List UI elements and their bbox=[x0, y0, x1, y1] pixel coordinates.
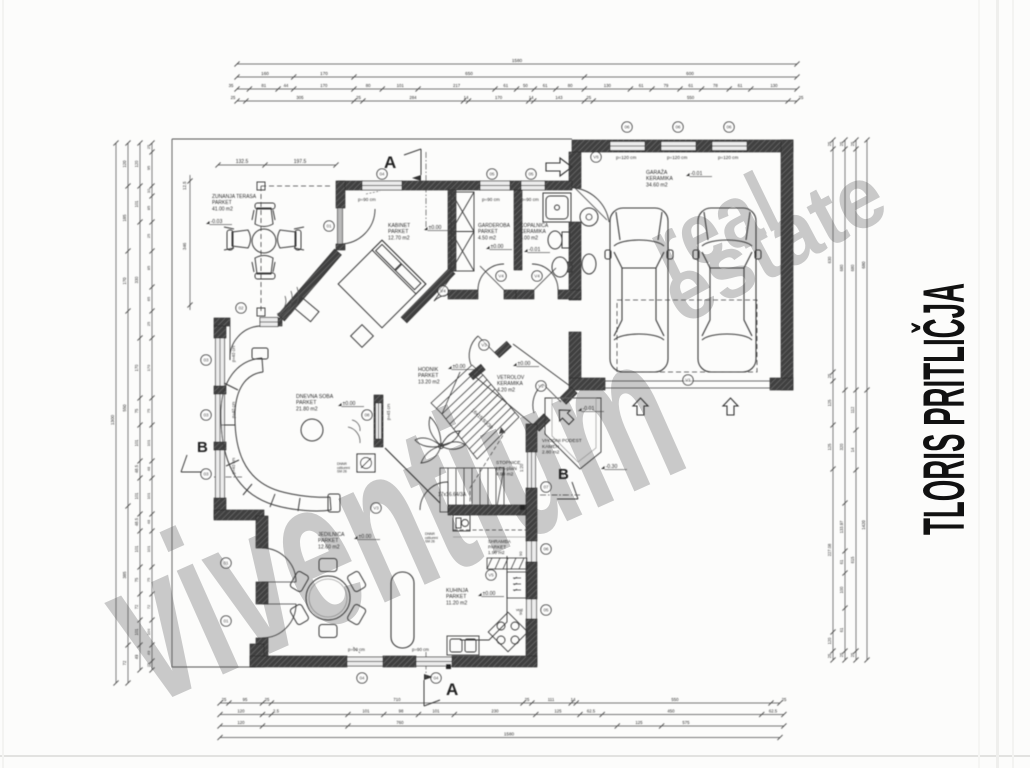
svg-text:DNEVNA SOBA: DNEVNA SOBA bbox=[296, 394, 334, 400]
svg-text:p=120 cm: p=120 cm bbox=[616, 155, 636, 160]
svg-text:VHODNI PODEST: VHODNI PODEST bbox=[542, 438, 582, 444]
svg-text:120: 120 bbox=[237, 709, 245, 714]
svg-text:1.90 m2: 1.90 m2 bbox=[488, 550, 505, 555]
svg-text:04: 04 bbox=[379, 172, 385, 177]
svg-text:550: 550 bbox=[687, 95, 695, 100]
svg-text:680: 680 bbox=[839, 264, 844, 272]
svg-text:2.80 m2: 2.80 m2 bbox=[542, 450, 560, 456]
svg-text:2.5: 2.5 bbox=[273, 709, 280, 714]
svg-text:B: B bbox=[197, 439, 208, 456]
svg-text:49: 49 bbox=[134, 654, 139, 659]
svg-text:630: 630 bbox=[827, 256, 832, 264]
svg-text:80: 80 bbox=[568, 83, 573, 88]
svg-text:330: 330 bbox=[134, 276, 139, 284]
svg-text:320: 320 bbox=[839, 443, 844, 451]
svg-text:p=120 cm: p=120 cm bbox=[667, 155, 687, 160]
svg-text:101: 101 bbox=[134, 200, 139, 208]
svg-text:112: 112 bbox=[850, 406, 855, 413]
svg-text:02: 02 bbox=[238, 306, 244, 311]
svg-text:PARKET: PARKET bbox=[212, 200, 232, 206]
svg-text:25: 25 bbox=[827, 141, 832, 146]
svg-text:170: 170 bbox=[122, 277, 127, 285]
svg-text:101: 101 bbox=[146, 493, 151, 500]
svg-text:25: 25 bbox=[850, 141, 855, 146]
svg-text:1:20: 1:20 bbox=[519, 463, 524, 472]
svg-text:44: 44 bbox=[284, 83, 289, 88]
svg-text:06: 06 bbox=[543, 547, 549, 552]
svg-text:170: 170 bbox=[320, 83, 328, 88]
svg-text:450: 450 bbox=[667, 709, 675, 714]
svg-text:25: 25 bbox=[146, 145, 151, 149]
svg-text:120: 120 bbox=[237, 720, 245, 725]
svg-text:170: 170 bbox=[320, 71, 328, 76]
svg-text:TLORIS PRITLIČJA: TLORIS PRITLIČJA bbox=[912, 283, 977, 535]
svg-text:125: 125 bbox=[827, 443, 832, 451]
svg-text:170: 170 bbox=[134, 364, 139, 372]
svg-text:217: 217 bbox=[453, 83, 461, 88]
svg-text:KUHINJA: KUHINJA bbox=[446, 588, 469, 594]
svg-text:ZUNANJA TERASA: ZUNANJA TERASA bbox=[212, 194, 257, 200]
svg-text:85: 85 bbox=[146, 206, 151, 210]
svg-text:143: 143 bbox=[555, 95, 563, 100]
svg-text:06: 06 bbox=[726, 125, 732, 130]
svg-text:230: 230 bbox=[491, 709, 499, 714]
svg-text:V5: V5 bbox=[488, 573, 494, 578]
svg-text:48: 48 bbox=[146, 467, 151, 471]
svg-text:120: 120 bbox=[122, 160, 127, 168]
svg-text:13.20 m2: 13.20 m2 bbox=[418, 379, 440, 385]
svg-text:12.70 m2: 12.70 m2 bbox=[388, 235, 410, 241]
svg-text:25: 25 bbox=[839, 141, 844, 146]
svg-text:05: 05 bbox=[489, 172, 495, 177]
svg-text:KAMEN: KAMEN bbox=[542, 444, 560, 450]
svg-text:79: 79 bbox=[664, 83, 669, 88]
svg-text:1300: 1300 bbox=[110, 414, 115, 425]
svg-text:75: 75 bbox=[134, 577, 139, 582]
svg-text:600: 600 bbox=[686, 71, 694, 76]
svg-text:61: 61 bbox=[688, 83, 693, 88]
svg-text:25: 25 bbox=[265, 697, 270, 702]
svg-text:p=90 cm: p=90 cm bbox=[358, 197, 376, 202]
svg-text:95: 95 bbox=[146, 166, 151, 170]
svg-text:72: 72 bbox=[134, 604, 139, 609]
svg-text:p=90 cm: p=90 cm bbox=[348, 647, 365, 652]
svg-text:4.00 m2: 4.00 m2 bbox=[520, 235, 538, 241]
svg-text:197.5: 197.5 bbox=[294, 159, 307, 165]
svg-text:48.5: 48.5 bbox=[134, 517, 139, 526]
svg-text:615: 615 bbox=[850, 556, 855, 564]
svg-text:14: 14 bbox=[850, 447, 855, 452]
svg-text:25: 25 bbox=[782, 697, 787, 702]
svg-text:V4: V4 bbox=[534, 274, 540, 279]
svg-text:41.00 m2: 41.00 m2 bbox=[212, 206, 233, 212]
svg-text:LES-plahi: LES-plahi bbox=[496, 466, 517, 472]
svg-text:550: 550 bbox=[671, 697, 679, 702]
svg-text:101: 101 bbox=[362, 709, 370, 714]
svg-text:101: 101 bbox=[397, 83, 405, 88]
svg-text:48.5: 48.5 bbox=[134, 464, 139, 473]
svg-text:81: 81 bbox=[261, 83, 266, 88]
svg-text:4.50 m2: 4.50 m2 bbox=[478, 235, 496, 241]
svg-text:V3: V3 bbox=[481, 343, 487, 348]
svg-text:06: 06 bbox=[675, 125, 681, 130]
svg-text:85: 85 bbox=[146, 266, 151, 270]
svg-text:1580: 1580 bbox=[512, 58, 523, 63]
svg-text:61: 61 bbox=[503, 83, 508, 88]
svg-text:4.20 m2: 4.20 m2 bbox=[497, 387, 515, 393]
svg-text:101: 101 bbox=[134, 439, 139, 447]
svg-text:48: 48 bbox=[146, 520, 151, 524]
svg-text:75: 75 bbox=[134, 408, 139, 413]
svg-text:72: 72 bbox=[146, 605, 151, 609]
svg-text:72: 72 bbox=[122, 660, 127, 665]
svg-text:p=40 cm: p=40 cm bbox=[231, 457, 236, 474]
svg-text:25: 25 bbox=[827, 373, 832, 378]
svg-text:07: 07 bbox=[543, 485, 549, 490]
svg-text:170: 170 bbox=[146, 364, 151, 371]
svg-text:61: 61 bbox=[839, 627, 844, 632]
svg-text:1580: 1580 bbox=[504, 732, 515, 737]
svg-text:PARKET: PARKET bbox=[318, 538, 339, 544]
svg-text:575: 575 bbox=[682, 720, 690, 725]
svg-text:120: 120 bbox=[134, 160, 139, 168]
svg-text:75: 75 bbox=[146, 578, 151, 582]
svg-text:GARDEROBA: GARDEROBA bbox=[478, 223, 511, 229]
svg-text:PARKET: PARKET bbox=[388, 229, 409, 235]
svg-text:14: 14 bbox=[571, 697, 576, 702]
svg-text:p=90 cm: p=90 cm bbox=[482, 197, 500, 202]
svg-text:227.08: 227.08 bbox=[827, 543, 832, 556]
svg-text:61: 61 bbox=[639, 83, 644, 88]
svg-text:25: 25 bbox=[146, 322, 151, 326]
svg-text:SHRAMBA: SHRAMBA bbox=[488, 539, 512, 544]
svg-text:V2: V2 bbox=[538, 384, 544, 389]
svg-text:01: 01 bbox=[223, 619, 229, 624]
svg-text:17x16.64/3A: 17x16.64/3A bbox=[438, 492, 467, 498]
svg-text:4.90 m2: 4.90 m2 bbox=[496, 472, 514, 478]
svg-text:03: 03 bbox=[203, 358, 209, 363]
svg-text:A: A bbox=[446, 680, 458, 699]
svg-text:160: 160 bbox=[261, 71, 269, 76]
svg-text:V4: V4 bbox=[498, 274, 504, 279]
svg-text:61: 61 bbox=[543, 83, 548, 88]
svg-text:25: 25 bbox=[356, 95, 361, 100]
svg-text:PARKET: PARKET bbox=[446, 594, 467, 600]
svg-text:170: 170 bbox=[495, 95, 503, 100]
svg-text:49: 49 bbox=[146, 651, 151, 655]
svg-text:130: 130 bbox=[770, 83, 778, 88]
svg-text:12.60 m2: 12.60 m2 bbox=[318, 544, 340, 550]
svg-text:03: 03 bbox=[203, 413, 209, 418]
svg-text:25: 25 bbox=[839, 652, 844, 657]
svg-text:710: 710 bbox=[393, 697, 401, 702]
svg-text:346: 346 bbox=[182, 242, 187, 250]
svg-text:14: 14 bbox=[464, 95, 469, 100]
svg-text:760: 760 bbox=[396, 720, 404, 725]
svg-text:V1: V1 bbox=[685, 378, 691, 383]
svg-text:25: 25 bbox=[586, 95, 591, 100]
svg-text:78: 78 bbox=[713, 83, 718, 88]
svg-text:1420: 1420 bbox=[861, 520, 866, 530]
svg-text:25: 25 bbox=[850, 652, 855, 657]
svg-text:680: 680 bbox=[850, 264, 855, 272]
svg-text:305: 305 bbox=[296, 95, 304, 100]
svg-text:25: 25 bbox=[799, 95, 804, 100]
svg-text:95: 95 bbox=[243, 697, 248, 702]
svg-text:80: 80 bbox=[366, 83, 371, 88]
svg-text:120: 120 bbox=[827, 637, 832, 645]
svg-text:01: 01 bbox=[223, 561, 229, 566]
svg-text:101: 101 bbox=[134, 628, 139, 636]
svg-text:25: 25 bbox=[146, 234, 151, 238]
svg-text:35: 35 bbox=[229, 83, 234, 88]
svg-text:125: 125 bbox=[554, 709, 562, 714]
svg-text:SM 26: SM 26 bbox=[425, 540, 435, 544]
svg-text:75: 75 bbox=[146, 409, 151, 413]
svg-text:111: 111 bbox=[548, 697, 555, 702]
svg-text:90: 90 bbox=[518, 551, 523, 556]
svg-text:p=45 cm: p=45 cm bbox=[386, 403, 391, 420]
svg-text:05: 05 bbox=[528, 172, 534, 177]
svg-text:KERAMIKA: KERAMIKA bbox=[497, 381, 524, 387]
svg-text:101: 101 bbox=[134, 545, 139, 553]
svg-text:A: A bbox=[384, 153, 396, 172]
svg-text:V6: V6 bbox=[593, 155, 599, 160]
svg-text:61: 61 bbox=[738, 83, 743, 88]
svg-text:185: 185 bbox=[122, 214, 127, 222]
svg-text:V4: V4 bbox=[440, 289, 446, 294]
svg-text:KERAMIKA: KERAMIKA bbox=[520, 229, 547, 235]
svg-text:PARKET: PARKET bbox=[296, 400, 317, 406]
svg-text:133.97: 133.97 bbox=[839, 520, 844, 533]
svg-text:50: 50 bbox=[523, 83, 528, 88]
svg-text:25: 25 bbox=[525, 697, 530, 702]
svg-text:STOPNICE: STOPNICE bbox=[496, 460, 520, 466]
svg-text:25: 25 bbox=[146, 663, 151, 667]
svg-text:680: 680 bbox=[861, 261, 866, 269]
svg-text:12.5: 12.5 bbox=[182, 181, 187, 190]
svg-text:100: 100 bbox=[839, 586, 844, 594]
svg-text:04: 04 bbox=[359, 676, 365, 681]
svg-text:GARAŽA: GARAŽA bbox=[646, 168, 668, 176]
svg-text:101: 101 bbox=[146, 440, 151, 447]
svg-text:04: 04 bbox=[433, 676, 439, 681]
svg-text:284: 284 bbox=[409, 95, 417, 100]
svg-text:62.5: 62.5 bbox=[587, 709, 596, 714]
svg-text:03: 03 bbox=[203, 472, 209, 477]
svg-text:65: 65 bbox=[146, 297, 151, 301]
svg-text:HODNIK: HODNIK bbox=[418, 367, 439, 373]
svg-text:98: 98 bbox=[399, 709, 404, 714]
svg-text:05: 05 bbox=[543, 608, 549, 613]
svg-text:385: 385 bbox=[122, 571, 127, 579]
svg-text:01: 01 bbox=[326, 224, 332, 229]
svg-text:130: 130 bbox=[604, 83, 612, 88]
svg-text:p=120 cm: p=120 cm bbox=[718, 155, 738, 160]
svg-text:JEDILNICA: JEDILNICA bbox=[318, 532, 345, 538]
svg-text:p=90 cm: p=90 cm bbox=[412, 647, 429, 652]
svg-text:21.80 m2: 21.80 m2 bbox=[296, 406, 318, 412]
svg-text:34.60 m2: 34.60 m2 bbox=[646, 182, 668, 188]
svg-text:08: 08 bbox=[364, 413, 370, 418]
svg-text:101: 101 bbox=[134, 492, 139, 500]
svg-text:vent: vent bbox=[516, 608, 523, 612]
svg-text:101: 101 bbox=[146, 546, 151, 553]
svg-text:25: 25 bbox=[827, 653, 832, 658]
svg-text:p=40 cm: p=40 cm bbox=[231, 345, 236, 362]
svg-text:125: 125 bbox=[827, 399, 832, 407]
svg-text:101: 101 bbox=[432, 709, 440, 714]
svg-text:132.5: 132.5 bbox=[236, 159, 249, 165]
svg-text:PARKET: PARKET bbox=[478, 229, 498, 235]
svg-text:V3: V3 bbox=[373, 506, 379, 511]
svg-text:25: 25 bbox=[222, 697, 227, 702]
svg-text:SM 26: SM 26 bbox=[337, 470, 347, 474]
svg-text:B: B bbox=[558, 466, 569, 483]
svg-text:125: 125 bbox=[635, 720, 643, 725]
svg-text:PARKET: PARKET bbox=[418, 373, 439, 379]
svg-text:KOPALNICA: KOPALNICA bbox=[520, 223, 549, 229]
svg-text:650: 650 bbox=[465, 71, 473, 76]
svg-text:62.5: 62.5 bbox=[769, 709, 778, 714]
svg-text:14: 14 bbox=[529, 95, 534, 100]
svg-text:p=90 cm: p=90 cm bbox=[521, 197, 539, 202]
svg-text:KERAMIKA: KERAMIKA bbox=[646, 176, 673, 182]
svg-text:61: 61 bbox=[839, 559, 844, 564]
svg-text:11.20 m2: 11.20 m2 bbox=[446, 600, 467, 606]
svg-text:VETROLOV: VETROLOV bbox=[497, 375, 525, 381]
svg-text:104: 104 bbox=[146, 628, 151, 635]
svg-text:KABINET: KABINET bbox=[388, 223, 411, 229]
svg-text:25: 25 bbox=[231, 95, 236, 100]
svg-text:06: 06 bbox=[624, 125, 630, 130]
svg-text:550: 550 bbox=[122, 404, 127, 412]
svg-text:PARKET: PARKET bbox=[488, 545, 506, 550]
